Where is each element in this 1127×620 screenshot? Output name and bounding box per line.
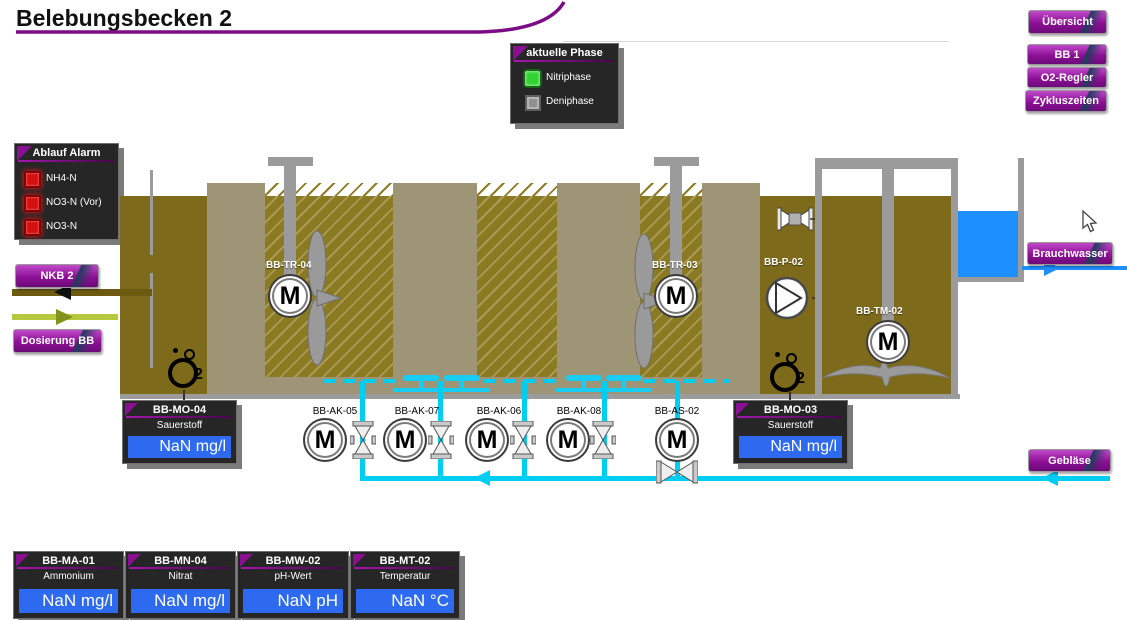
motor-letter: M bbox=[477, 426, 498, 455]
measurement-title: BB-MA-01 bbox=[14, 552, 123, 567]
tank-bottom-wall bbox=[120, 394, 960, 399]
nav-button-nkb2[interactable]: NKB 2 bbox=[15, 264, 99, 288]
panel-accent-line bbox=[514, 60, 613, 62]
motor-letter: M bbox=[280, 282, 301, 311]
air-valve-motor-ak08[interactable]: M bbox=[546, 418, 590, 462]
title-underline-swoosh bbox=[0, 0, 600, 44]
panel-accent-line bbox=[17, 567, 118, 569]
nav-button-dosierung-bb[interactable]: Dosierung BB bbox=[13, 329, 102, 353]
alarm-led-no3n-vor-icon bbox=[24, 195, 41, 212]
o2-sensor-icon: 2 bbox=[770, 352, 810, 394]
flow-arrow-left-icon bbox=[474, 470, 490, 486]
nitriphase-led-icon bbox=[523, 69, 542, 88]
mixer1-mount bbox=[268, 157, 313, 166]
measurement-title: BB-MT-02 bbox=[351, 552, 459, 567]
hatch-rim bbox=[477, 183, 557, 196]
submersible-label: BB-TM-02 bbox=[856, 306, 903, 317]
alarm-label-no3n-vor: NO3-N (Vor) bbox=[46, 197, 102, 208]
air-valve-motor-ak06[interactable]: M bbox=[465, 418, 509, 462]
panel-accent-line bbox=[241, 567, 343, 569]
flow-arrow-right-icon bbox=[56, 309, 73, 325]
nav-button-brauchwasser[interactable]: Brauchwasser bbox=[1027, 242, 1113, 265]
inlet-wall bbox=[150, 273, 153, 368]
alarm-panel-title: Ablauf Alarm bbox=[15, 144, 118, 159]
mixer1-label: BB-TR-04 bbox=[266, 260, 312, 271]
mixer2-mount bbox=[654, 157, 699, 166]
air-valve-motor-ak07[interactable]: M bbox=[383, 418, 427, 462]
measurement-param: Nitrat bbox=[126, 571, 235, 582]
valve-label: BB-AS-02 bbox=[637, 406, 717, 417]
measurement-title: BB-MW-02 bbox=[238, 552, 348, 567]
phase-panel-title: aktuelle Phase bbox=[511, 44, 618, 59]
scada-screen: Belebungsbecken 2 Übersicht BB 1 O2-Regl… bbox=[0, 0, 1127, 620]
motor-letter: M bbox=[395, 426, 416, 455]
blower-valve-icon[interactable] bbox=[656, 460, 698, 484]
measurement-value: NaN mg/l bbox=[131, 589, 230, 613]
mixer2-label: BB-TR-03 bbox=[652, 260, 698, 271]
submersible-motor[interactable]: M bbox=[866, 320, 910, 364]
motor-letter: M bbox=[315, 426, 336, 455]
chamber-rim-top bbox=[815, 158, 958, 169]
panel-accent-line bbox=[737, 416, 842, 418]
pump-label: BB-P-02 bbox=[764, 257, 803, 268]
o2-bubble bbox=[173, 348, 178, 353]
inlet-wall bbox=[150, 170, 153, 255]
mouse-cursor-icon bbox=[1080, 210, 1098, 234]
header-separator bbox=[563, 41, 948, 42]
measurement-value: NaN °C bbox=[356, 589, 454, 613]
o2-subscript: 2 bbox=[194, 366, 203, 384]
nav-button-uebersicht[interactable]: Übersicht bbox=[1028, 10, 1107, 34]
measurement-param: Temperatur bbox=[351, 571, 459, 582]
control-valve-icon[interactable] bbox=[510, 421, 536, 459]
alarm-label-nh4n: NH4-N bbox=[46, 173, 77, 184]
control-valve-icon[interactable] bbox=[428, 421, 454, 459]
valve-label: BB-AK-06 bbox=[459, 406, 539, 417]
control-valve-icon[interactable] bbox=[590, 421, 616, 459]
deniphase-label: Deniphase bbox=[546, 96, 594, 107]
clearwater bbox=[958, 211, 1018, 277]
measurement-value: NaN mg/l bbox=[19, 589, 118, 613]
alarm-led-no3n-icon bbox=[24, 219, 41, 236]
tank-partition bbox=[557, 183, 640, 395]
alarm-label-no3n: NO3-N bbox=[46, 221, 77, 232]
diffuser-line bbox=[644, 379, 730, 383]
air-manifold-pipe bbox=[360, 476, 1110, 481]
measurement-param: Sauerstoff bbox=[734, 420, 847, 431]
tank-partition bbox=[702, 183, 760, 395]
o2-bubble bbox=[775, 352, 780, 357]
nav-button-zykluszeiten[interactable]: Zykluszeiten bbox=[1025, 90, 1107, 112]
blower-valve-motor-as02[interactable]: M bbox=[655, 418, 699, 462]
measurement-title: BB-MO-03 bbox=[734, 401, 847, 416]
measurement-value: NaN pH bbox=[243, 589, 343, 613]
clearwater-floor bbox=[956, 277, 1024, 282]
nav-button-geblaese[interactable]: Gebläse bbox=[1028, 449, 1111, 472]
measurement-panel-mw02: BB-MW-02 pH-Wert NaN pH bbox=[237, 551, 349, 619]
measurement-panel-mo03: BB-MO-03 Sauerstoff NaN mg/l bbox=[733, 400, 848, 464]
panel-accent-line bbox=[354, 567, 454, 569]
mixer2-motor[interactable]: M bbox=[654, 274, 698, 318]
panel-accent-line bbox=[129, 567, 230, 569]
motor-letter: M bbox=[666, 282, 687, 311]
flow-arrow-left-icon bbox=[1042, 470, 1058, 486]
measurement-param: Ammonium bbox=[14, 571, 123, 582]
measurement-value: NaN mg/l bbox=[128, 436, 231, 458]
nitriphase-label: Nitriphase bbox=[546, 72, 591, 83]
nav-button-o2-regler[interactable]: O2-Regler bbox=[1027, 67, 1107, 88]
measurement-panel-ma01: BB-MA-01 Ammonium NaN mg/l bbox=[13, 551, 124, 619]
nav-button-bb1[interactable]: BB 1 bbox=[1027, 44, 1107, 65]
valve-label: BB-AK-08 bbox=[539, 406, 619, 417]
measurement-value: NaN mg/l bbox=[739, 436, 842, 458]
mixer1-motor[interactable]: M bbox=[268, 274, 312, 318]
clearwater-wall-right bbox=[1018, 158, 1024, 279]
measurement-panel-mn04: BB-MN-04 Nitrat NaN mg/l bbox=[125, 551, 236, 619]
tank-partition bbox=[393, 183, 477, 395]
hatch-zone bbox=[477, 196, 557, 377]
valve-label: BB-AK-07 bbox=[377, 406, 457, 417]
measurement-title: BB-MN-04 bbox=[126, 552, 235, 567]
tank-partition bbox=[207, 183, 265, 395]
alarm-panel: Ablauf Alarm NH4-N NO3-N (Vor) NO3-N bbox=[14, 143, 119, 240]
measurement-param: Sauerstoff bbox=[123, 420, 236, 431]
phase-panel: aktuelle Phase Nitriphase Deniphase bbox=[510, 43, 619, 124]
motor-letter: M bbox=[558, 426, 579, 455]
return-sludge-pipe bbox=[12, 289, 152, 296]
motor-letter: M bbox=[878, 328, 899, 357]
measurement-panel-mt02: BB-MT-02 Temperatur NaN °C bbox=[350, 551, 460, 619]
pump-icon[interactable] bbox=[765, 276, 809, 320]
o2-sensor-icon: 2 bbox=[168, 348, 208, 390]
panel-accent-line bbox=[126, 416, 231, 418]
motor-letter: M bbox=[667, 426, 688, 455]
brauchwasser-pipe bbox=[1022, 266, 1127, 270]
o2-subscript: 2 bbox=[796, 370, 805, 388]
measurement-param: pH-Wert bbox=[238, 571, 348, 582]
control-valve-icon[interactable] bbox=[350, 421, 376, 459]
panel-accent-line bbox=[18, 160, 113, 162]
air-valve-motor-ak05[interactable]: M bbox=[303, 418, 347, 462]
valve-label: BB-AK-05 bbox=[295, 406, 375, 417]
deniphase-led-icon bbox=[525, 95, 541, 111]
alarm-led-nh4n-icon bbox=[24, 171, 41, 188]
measurement-panel-mo04: BB-MO-04 Sauerstoff NaN mg/l bbox=[122, 400, 237, 464]
measurement-title: BB-MO-04 bbox=[123, 401, 236, 416]
